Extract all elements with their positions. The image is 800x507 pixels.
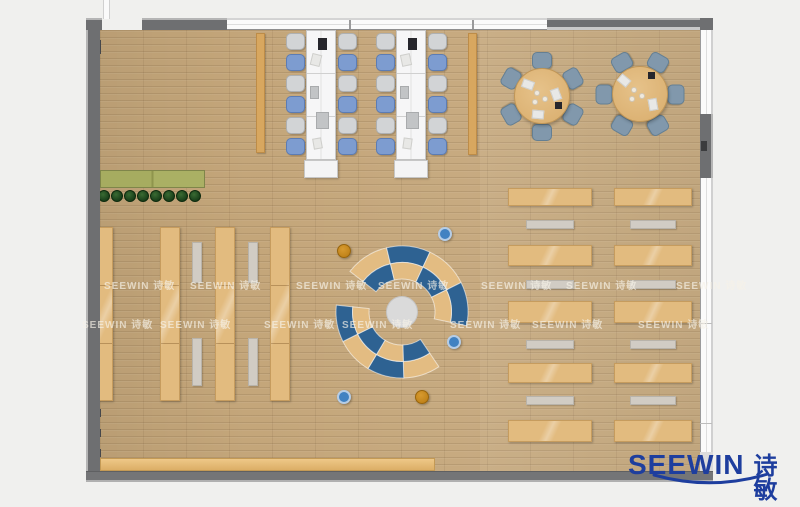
watermark-text: SEEWIN 诗敏 [450,316,521,331]
plant [189,190,201,202]
office-chair [338,75,357,92]
window-sill [547,27,700,30]
furniture-layer [0,0,800,507]
office-chair [338,138,357,155]
office-chair [428,117,447,134]
logo-swoosh-icon [652,472,770,490]
desk-item [312,137,323,149]
wall-top-segment [547,18,713,27]
desk-item [316,112,329,129]
wall-top-segment [142,18,227,30]
reading-bench [630,396,676,405]
bottom-cabinet [100,458,435,471]
stool-blue [447,335,461,349]
reading-bench [630,340,676,349]
reading-table [614,363,692,383]
table-paper [648,98,659,111]
office-chair [376,117,395,134]
stool-blue [337,390,351,404]
aisle-bench [192,338,202,386]
reading-table [508,245,592,266]
window-right [700,30,713,114]
stool-ochre [337,244,351,258]
plant [176,190,188,202]
watermark-text: SEEWIN 诗敏 [676,277,747,292]
reading-bench [526,340,574,349]
wall-left [86,18,100,482]
reading-bench [526,396,574,405]
bookshelf [160,227,180,401]
plant [137,190,149,202]
office-chair [338,96,357,113]
aisle-bench [248,338,258,386]
window-mullion [700,423,712,424]
watermark-text: SEEWIN 诗敏 [296,277,367,292]
reading-table [508,420,592,442]
plant [163,190,175,202]
door-opening-top [103,0,110,19]
table-paper [532,109,545,119]
office-chair [286,96,305,113]
reading-table [614,245,692,266]
table-chair [596,84,613,104]
bookshelf [215,227,235,401]
reading-table [614,188,692,206]
table-chair [532,52,552,69]
office-chair [376,75,395,92]
wall-top-segment [86,18,102,30]
watermark-text: SEEWIN 诗敏 [566,277,637,292]
office-chair [428,33,447,50]
plant [124,190,136,202]
reading-bench [526,220,574,229]
watermark-text: SEEWIN 诗敏 [342,316,413,331]
office-chair [286,54,305,71]
table-chair [532,124,552,141]
library-floorplan: SEEWIN 诗敏SEEWIN 诗敏SEEWIN 诗敏SEEWIN 诗敏SEEW… [0,0,800,507]
door-right [701,141,707,151]
table-device [648,72,655,79]
office-chair [428,75,447,92]
table-cup [639,93,645,99]
office-chair [338,54,357,71]
office-chair [338,117,357,134]
office-chair [286,138,305,155]
desk-item [318,38,327,50]
plant [111,190,123,202]
watermark-text: SEEWIN 诗敏 [378,277,449,292]
office-chair [286,117,305,134]
desk-item [408,38,417,50]
table-cup [629,96,635,102]
watermark-text: SEEWIN 诗敏 [638,316,709,331]
table-cup [532,99,538,105]
table-cup [631,87,637,93]
bookshelf [270,227,290,401]
office-chair [376,33,395,50]
seewin-logo: SEEWIN 诗敏 [628,451,800,502]
watermark-text: SEEWIN 诗敏 [481,277,552,292]
reading-table [614,420,692,442]
desk-endcap [304,160,338,178]
desk-endcap [394,160,428,178]
plant [150,190,162,202]
storage-strip [468,33,477,155]
watermark-text: SEEWIN 诗敏 [190,277,261,292]
reading-table [508,188,592,206]
desk-item [400,86,409,99]
reading-table [508,363,592,383]
wall-corner [700,18,713,30]
office-chair [376,96,395,113]
desk-item [406,112,419,129]
office-chair [376,54,395,71]
bookshelf [98,227,113,401]
window-top [227,18,547,30]
watermark-text: SEEWIN 诗敏 [160,316,231,331]
desk-item [400,53,412,67]
reading-bench [630,220,676,229]
office-chair [338,33,357,50]
wall-bottom [86,471,713,482]
table-device [555,102,562,109]
planter-box [100,170,205,188]
watermark-text: SEEWIN 诗敏 [532,316,603,331]
storage-strip [256,33,265,153]
table-chair [668,84,685,104]
watermark-text: SEEWIN 诗敏 [104,277,175,292]
desk-item [310,86,319,99]
table-cup [542,96,548,102]
watermark-text: SEEWIN 诗敏 [264,316,335,331]
office-chair [428,138,447,155]
office-chair [428,96,447,113]
desk-item [402,137,412,149]
table-cup [534,90,540,96]
stool-ochre [415,390,429,404]
stool-blue [438,227,452,241]
office-chair [376,138,395,155]
office-chair [428,54,447,71]
office-chair [286,75,305,92]
office-chair [286,33,305,50]
window-right [700,178,713,452]
watermark-text: SEEWIN 诗敏 [82,316,153,331]
